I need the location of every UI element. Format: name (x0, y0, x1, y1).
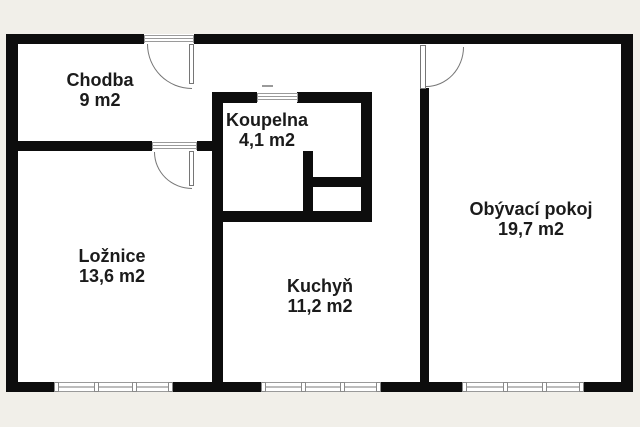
window-mullion (54, 382, 59, 392)
window-mullion (462, 382, 467, 392)
window-mullion (301, 382, 306, 392)
wall-kitchen-livingroom (420, 88, 429, 392)
window-mullion (542, 382, 547, 392)
entrance-door-opening (144, 35, 194, 43)
wall-right (621, 34, 633, 392)
wall-bedroom-kitchen (212, 92, 223, 382)
room-label-bedroom: Ložnice 13,6 m2 (78, 246, 145, 286)
room-area: 9 m2 (67, 90, 134, 110)
room-label-livingroom: Obývací pokoj 19,7 m2 (469, 199, 592, 239)
window-mullion (340, 382, 345, 392)
window-kitchen (262, 382, 380, 392)
room-area: 13,6 m2 (78, 266, 145, 286)
window-mullion (579, 382, 584, 392)
floor-plan: Chodba 9 m2 Koupelna 4,1 m2 Ložnice 13,6… (0, 0, 640, 427)
room-name: Kuchyň (287, 276, 353, 296)
wall-bathroom-right (361, 92, 372, 222)
room-label-hallway: Chodba 9 m2 (67, 70, 134, 110)
wall-bathroom-shaft-horizontal (313, 177, 361, 187)
window-bedroom (55, 382, 172, 392)
room-area: 4,1 m2 (226, 130, 308, 150)
wall-bottom-segment-4 (583, 382, 633, 392)
wall-hallway-bedroom (18, 141, 152, 151)
wall-bottom-segment-2 (172, 382, 262, 392)
wall-hallway-bedroom-stub (197, 141, 212, 151)
room-area: 19,7 m2 (469, 219, 592, 239)
wall-bathroom-bottom (212, 211, 372, 222)
bedroom-door-opening (152, 142, 197, 150)
room-label-bathroom: Koupelna 4,1 m2 (226, 110, 308, 150)
wall-left (6, 34, 18, 392)
room-name: Obývací pokoj (469, 199, 592, 219)
wall-bathroom-top-left (212, 92, 257, 103)
wall-top-right-segment (194, 34, 633, 44)
window-mullion (376, 382, 381, 392)
window-mullion (261, 382, 266, 392)
wall-bathroom-shaft-vertical (303, 151, 313, 222)
wall-bottom-segment-1 (6, 382, 55, 392)
window-mullion (503, 382, 508, 392)
room-name: Ložnice (78, 246, 145, 266)
window-livingroom (463, 382, 583, 392)
window-mullion (94, 382, 99, 392)
room-area: 11,2 m2 (287, 296, 353, 316)
wall-top-left-segment (6, 34, 144, 44)
bathroom-window (257, 93, 298, 102)
window-mullion (132, 382, 137, 392)
window-mullion (168, 382, 173, 392)
room-label-kitchen: Kuchyň 11,2 m2 (287, 276, 353, 316)
room-name: Koupelna (226, 110, 308, 130)
bathroom-window-mark (262, 85, 273, 87)
room-name: Chodba (67, 70, 134, 90)
